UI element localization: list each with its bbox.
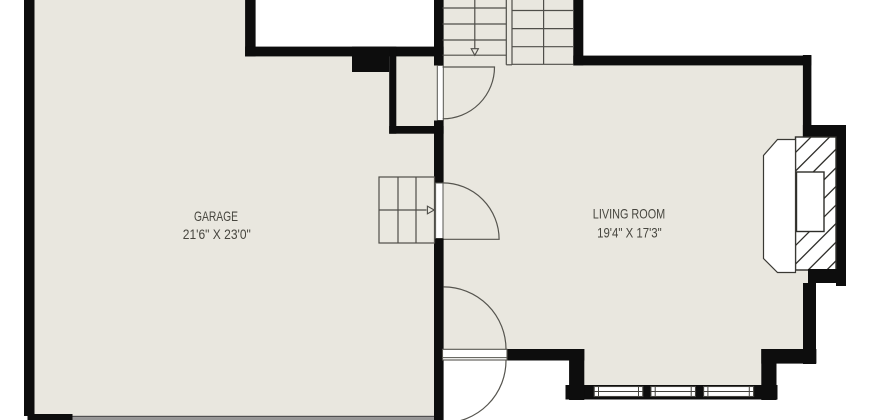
svg-text:LIVING ROOM: LIVING ROOM bbox=[593, 206, 665, 222]
svg-text:GARAGE: GARAGE bbox=[194, 208, 238, 224]
svg-text:21'6" X 23'0": 21'6" X 23'0" bbox=[183, 226, 251, 242]
svg-text:19'4" X 17'3": 19'4" X 17'3" bbox=[597, 225, 662, 241]
